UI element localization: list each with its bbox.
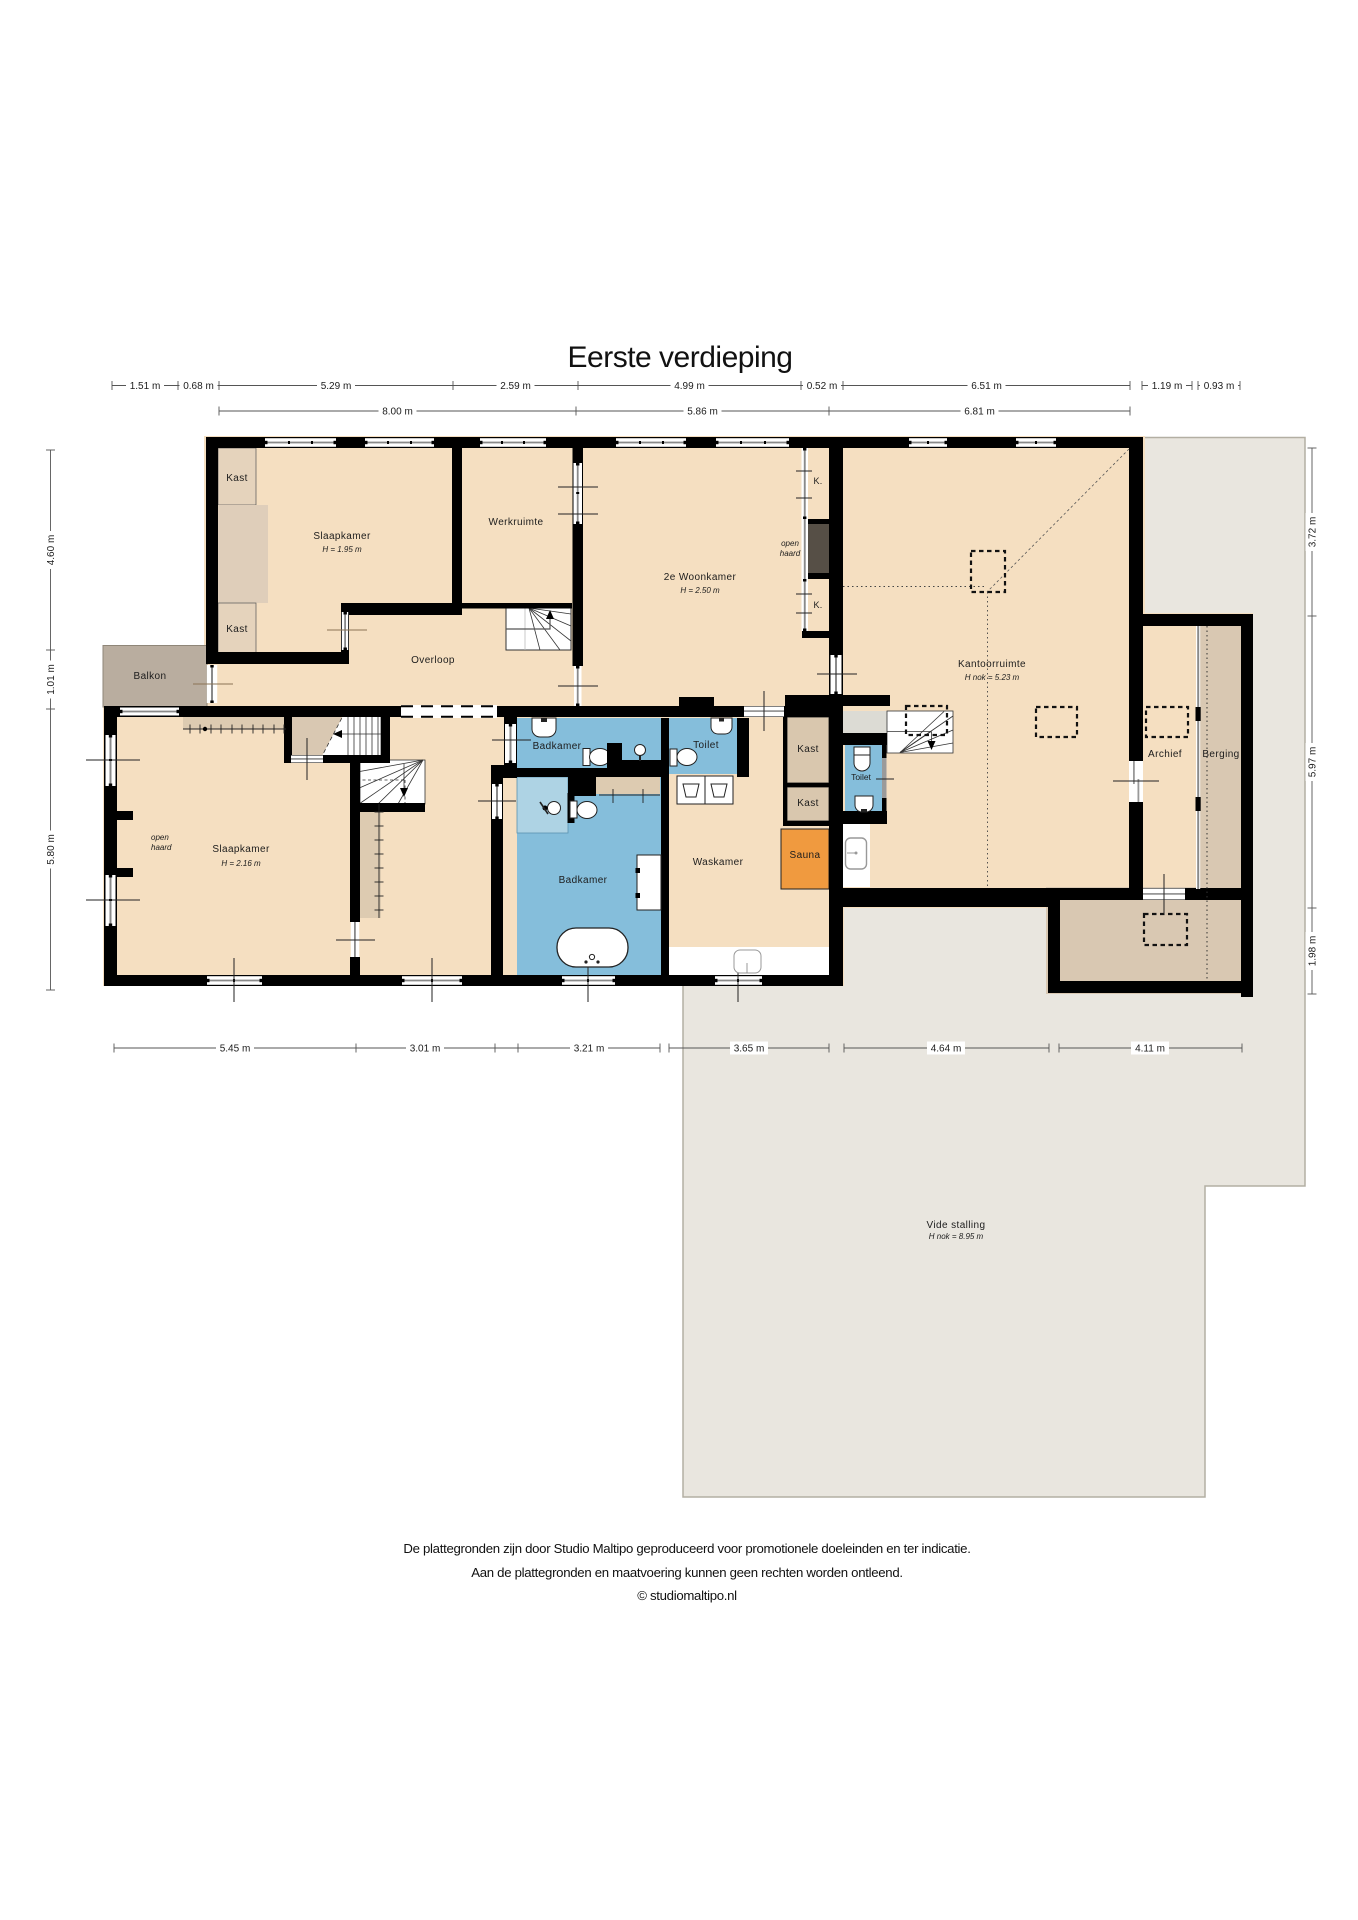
svg-text:5.29 m: 5.29 m [321,381,352,392]
svg-text:5.97 m: 5.97 m [1308,747,1319,778]
svg-text:haard: haard [151,843,172,852]
svg-text:3.21 m: 3.21 m [574,1044,605,1055]
svg-text:H = 2.16 m: H = 2.16 m [221,859,261,868]
svg-text:3.72 m: 3.72 m [1308,517,1319,548]
svg-text:Toilet: Toilet [851,772,871,782]
svg-text:6.51 m: 6.51 m [971,381,1002,392]
svg-text:Kantoorruimte: Kantoorruimte [958,659,1026,670]
svg-text:© studiomaltipo.nl: © studiomaltipo.nl [637,1588,737,1603]
svg-text:De plattegronden zijn door Stu: De plattegronden zijn door Studio Maltip… [403,1541,970,1556]
svg-text:Archief: Archief [1148,749,1182,760]
svg-text:Overloop: Overloop [411,655,455,666]
svg-text:3.01 m: 3.01 m [410,1044,441,1055]
svg-text:Slaapkamer: Slaapkamer [313,531,371,542]
svg-text:Kast: Kast [226,473,248,484]
svg-text:4.99 m: 4.99 m [674,381,705,392]
svg-text:open: open [781,539,799,548]
svg-text:1.51 m: 1.51 m [130,381,161,392]
svg-text:H nok = 5.23 m: H nok = 5.23 m [965,673,1020,682]
svg-text:K.: K. [814,600,823,610]
svg-text:Balkon: Balkon [134,671,167,682]
svg-text:H nok = 8.95 m: H nok = 8.95 m [929,1232,984,1241]
svg-text:4.11 m: 4.11 m [1135,1044,1165,1055]
svg-text:H = 1.95 m: H = 1.95 m [322,545,362,554]
svg-text:Toilet: Toilet [693,740,719,751]
svg-text:2.59 m: 2.59 m [500,381,531,392]
svg-text:5.45 m: 5.45 m [220,1044,251,1055]
svg-text:1.19 m: 1.19 m [1152,381,1183,392]
svg-text:Aan de plattegronden en maatvo: Aan de plattegronden en maatvoering kunn… [471,1565,903,1580]
svg-text:Waskamer: Waskamer [693,857,744,868]
svg-text:K.: K. [814,476,823,486]
svg-text:Berging: Berging [1202,749,1239,760]
svg-text:Kast: Kast [226,624,248,635]
svg-text:Werkruimte: Werkruimte [489,517,544,528]
svg-text:1.98 m: 1.98 m [1308,936,1319,967]
svg-text:open: open [151,833,169,842]
svg-text:Eerste verdieping: Eerste verdieping [568,341,793,374]
svg-text:1.01 m: 1.01 m [46,664,57,695]
svg-text:Slaapkamer: Slaapkamer [212,844,270,855]
svg-text:4.60 m: 4.60 m [46,535,57,566]
svg-text:Kast: Kast [797,798,819,809]
svg-text:haard: haard [780,549,801,558]
svg-text:8.00 m: 8.00 m [382,407,413,418]
svg-text:H = 2.50 m: H = 2.50 m [680,586,720,595]
svg-text:0.52 m: 0.52 m [807,381,838,392]
svg-text:6.81 m: 6.81 m [964,407,995,418]
svg-text:3.65 m: 3.65 m [734,1044,765,1055]
svg-text:2e Woonkamer: 2e Woonkamer [664,572,737,583]
svg-text:Kast: Kast [797,744,819,755]
svg-text:5.86 m: 5.86 m [687,407,718,418]
svg-text:Badkamer: Badkamer [559,875,608,886]
svg-text:0.68 m: 0.68 m [183,381,214,392]
svg-text:5.80 m: 5.80 m [46,834,57,865]
svg-text:Sauna: Sauna [790,850,821,861]
svg-text:4.64 m: 4.64 m [931,1044,962,1055]
svg-text:Vide stalling: Vide stalling [927,1220,986,1231]
svg-text:0.93 m: 0.93 m [1204,381,1235,392]
svg-text:Badkamer: Badkamer [533,741,582,752]
